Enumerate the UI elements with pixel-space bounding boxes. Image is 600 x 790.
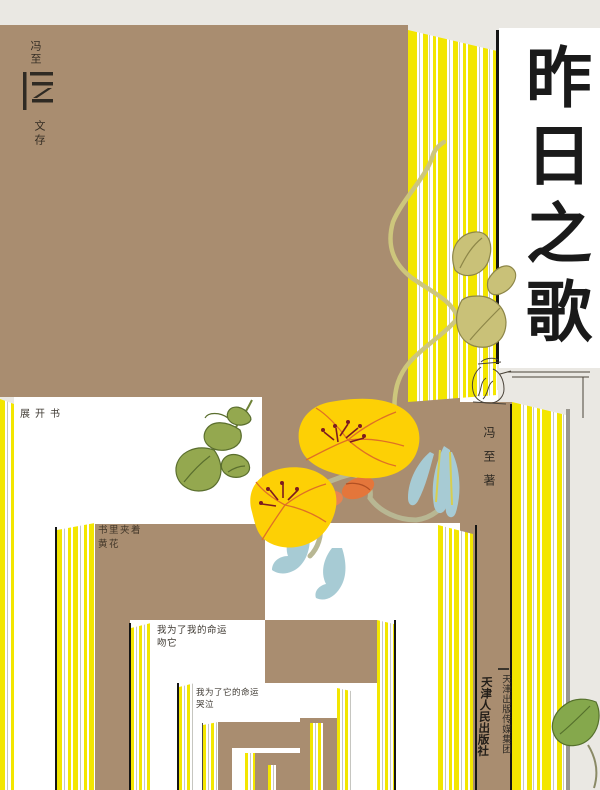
caption-open-book: 展开书 xyxy=(20,405,65,420)
page-edge-stripes-left xyxy=(0,399,14,790)
cover-edge-line-level3-right xyxy=(394,620,396,790)
book-title: 昨日之歌 xyxy=(521,43,587,355)
page-edge-stripes-level5-right xyxy=(310,723,323,790)
author-name: 冯至 xyxy=(482,426,496,474)
cover-block-main xyxy=(0,25,408,397)
caption-insert-line1: 书里夹着 xyxy=(98,522,142,536)
page-edge-stripes-level4-left xyxy=(179,683,195,790)
cover-edge-line-level3 xyxy=(129,623,131,790)
page-edge-stripes-level2-left xyxy=(57,523,95,790)
author-role: 著 xyxy=(482,474,496,498)
page-edge-stripes-level5-left xyxy=(203,722,218,790)
cover-block-middle xyxy=(262,395,460,523)
cover-edge-line-level5 xyxy=(202,723,203,790)
book-cover: 冯至 文存 xyxy=(0,0,600,790)
cover-block-level6 xyxy=(255,753,300,790)
series-author: 冯至 xyxy=(27,40,43,66)
page-edge-stripes-level4-right xyxy=(337,688,351,790)
publisher-divider-line xyxy=(498,668,509,670)
spine-outer-gray-edge xyxy=(566,409,570,790)
page-edge-stripes-right xyxy=(408,30,497,402)
cover-edge-line-level2 xyxy=(55,527,57,790)
page-edge-stripes-level3-right xyxy=(377,620,394,790)
caption-fate-its-line1: 我为了它的命运 xyxy=(196,686,259,698)
caption-fate-mine-line2: 吻它 xyxy=(157,635,177,649)
caption-fate-mine-line1: 我为了我的命运 xyxy=(157,622,227,636)
author-name-and-role: 冯至著 xyxy=(481,426,498,498)
cover-block-level3 xyxy=(265,620,377,683)
cover-block-level5-side xyxy=(218,722,232,790)
page-edge-stripes-level6-left xyxy=(245,753,255,790)
cover-edge-line-level4 xyxy=(177,683,179,790)
series-name: 文存 xyxy=(31,120,47,148)
caption-insert-line2: 黄花 xyxy=(98,536,120,550)
publisher-group: 天津出版传媒集团 xyxy=(498,674,512,754)
cover-edge-line-title xyxy=(496,30,499,364)
page-edge-stripes-spine-left xyxy=(438,525,473,790)
cover-block-level2-side xyxy=(95,524,130,790)
caption-fate-its-line2: 哭泣 xyxy=(196,698,214,710)
fengzhi-monogram-logo xyxy=(23,72,53,110)
page-edge-stripes-spine-right xyxy=(512,402,566,790)
page-edge-stripes-level6-inner xyxy=(268,765,276,790)
page-edge-stripes-level3-left xyxy=(131,623,151,790)
